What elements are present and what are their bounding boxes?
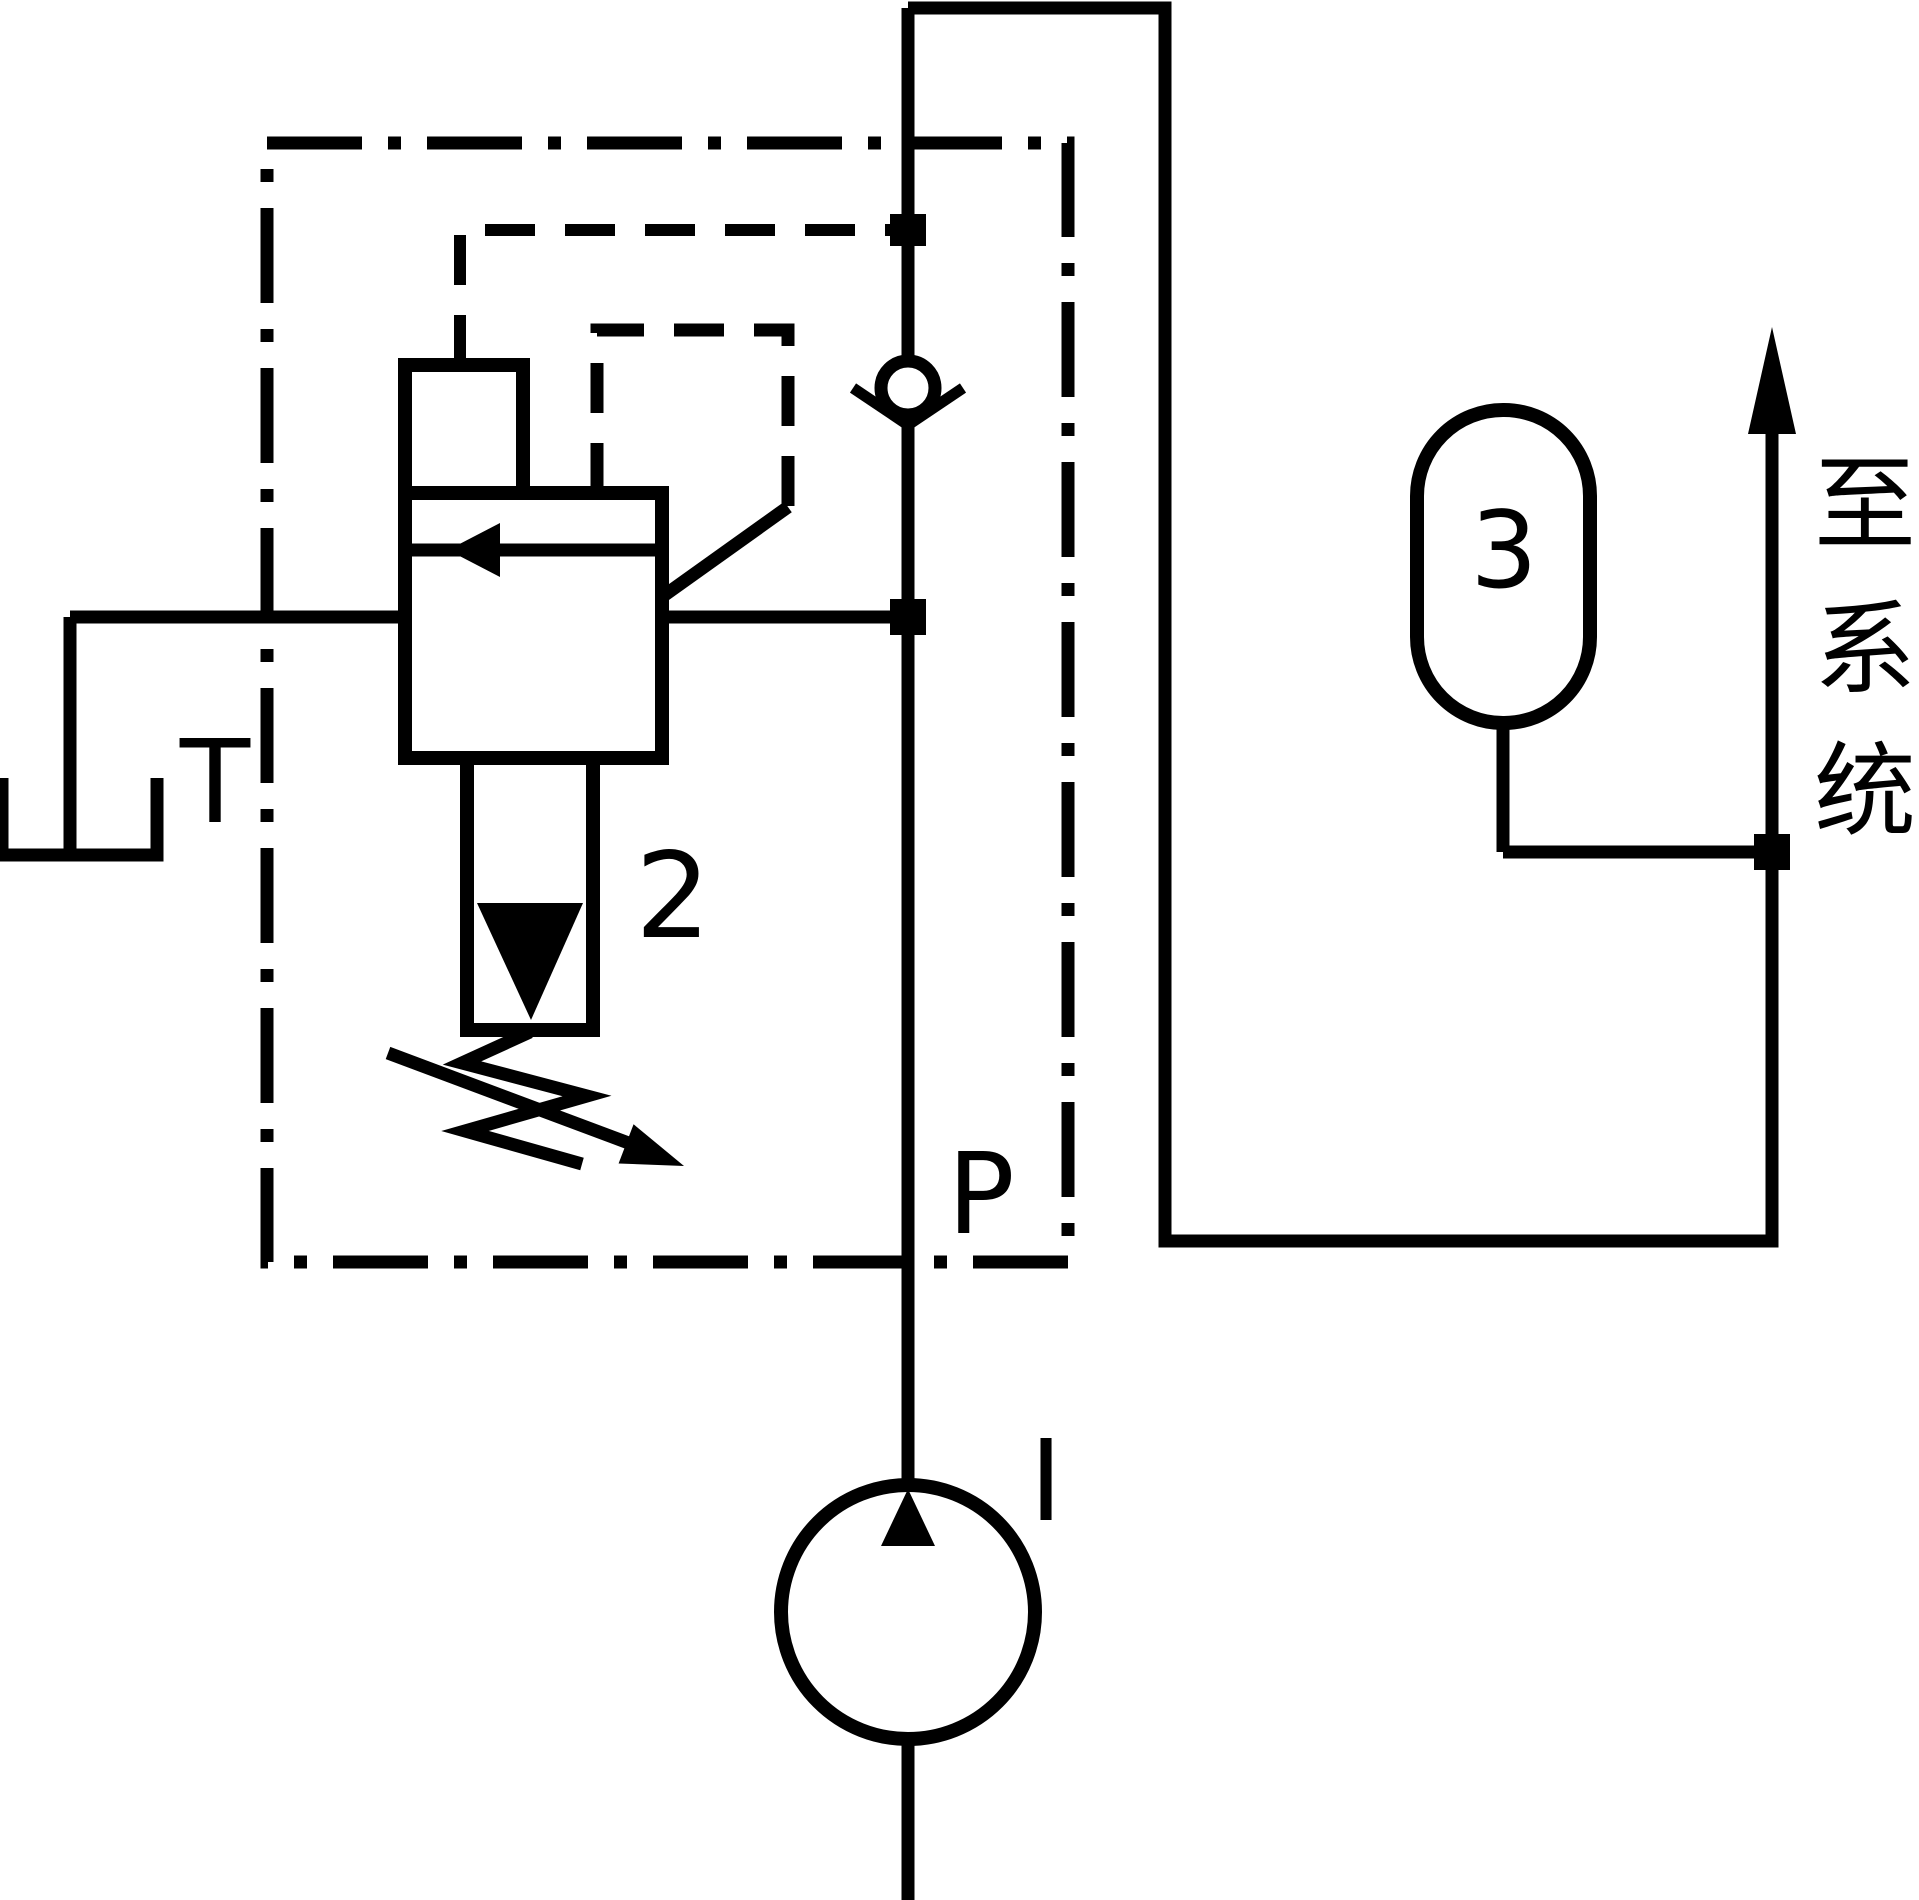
schematic-canvas: T 2 3 P I 至 系 统 (0, 0, 1919, 1900)
hydraulic-schematic: T 2 3 P I 至 系 统 (0, 0, 1919, 1900)
relief-valve-label: 2 (635, 828, 711, 966)
valve-flow-arrow-icon (448, 523, 500, 577)
annotation-char-zhi: 至 (1814, 446, 1916, 565)
pressure-port-label: P (947, 1130, 1015, 1260)
valve-pilot-chamber (405, 365, 523, 493)
relief-valve-body (405, 493, 662, 758)
pump-flow-triangle-icon (881, 1489, 935, 1546)
pilot-line-dashed (460, 230, 890, 365)
valve-poppet-cone-icon (477, 903, 583, 1020)
junction-node-p-port (890, 599, 926, 635)
to-system-arrow-icon (1748, 327, 1796, 434)
tank-symbol-icon (2, 778, 157, 855)
tank-port-label: T (179, 716, 251, 850)
system-supply-pipe (908, 8, 1772, 1241)
junction-node-pilot (890, 214, 926, 246)
annotation-char-xi: 系 (1814, 591, 1916, 710)
spring-adjust-arrowhead-icon (619, 1124, 692, 1185)
accumulator-label: 3 (1470, 489, 1537, 612)
internal-pilot-box-dashed (597, 330, 788, 507)
spring-adjust-arrow-shaft (388, 1053, 650, 1151)
pilot-tap-diagonal (662, 507, 788, 597)
annotation-char-tong: 统 (1814, 733, 1916, 852)
junction-node-accumulator (1754, 834, 1790, 870)
pump-label: I (1029, 1417, 1062, 1547)
